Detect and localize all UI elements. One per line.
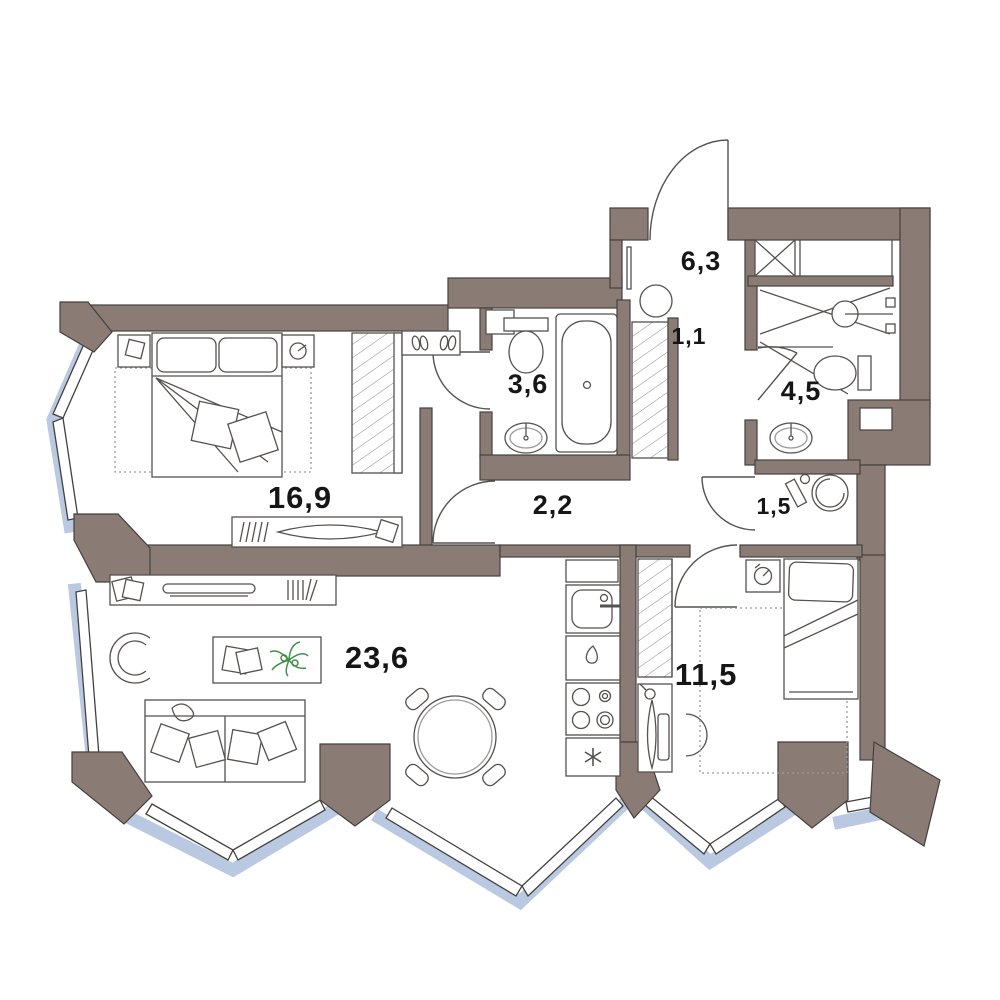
nightstand [282,335,314,367]
living-corridor-door [433,481,495,543]
wall [88,305,448,331]
wall [748,276,893,286]
window [644,796,710,854]
wall [900,208,930,408]
wardrobe [638,559,672,677]
wall [96,545,500,576]
wall [420,408,432,548]
coffee-table [213,637,321,683]
entry-door [650,140,728,240]
room-label-corridor: 2,2 [533,490,574,520]
nightstand [118,335,150,367]
wardrobe [632,322,668,458]
wall [745,420,757,465]
wall [610,240,622,288]
water-heater [640,285,672,317]
tv-console [110,575,336,605]
room-label-living: 23,6 [345,640,409,675]
stove [566,683,620,735]
wall [617,300,630,458]
toilet [814,356,871,390]
bench-shelf [232,517,402,547]
wall [480,412,492,458]
window [53,344,94,418]
kitchen-counter [566,636,620,680]
single-bed [784,559,858,699]
room-label-bedroom: 16,9 [268,480,332,515]
kitchen-sink [566,585,620,633]
kitchen-cabinet [566,560,618,582]
room-label-bedroom2: 11,5 [675,657,738,692]
bathroom-sink [505,423,547,453]
wall [860,555,885,760]
room-label-bathroom: 3,6 [508,369,549,399]
desk [638,684,672,772]
bathtub [556,314,617,452]
toilet [504,318,548,373]
wardrobe [352,333,402,473]
double-bed [152,333,282,477]
laundry-fixtures [785,475,848,512]
wall [480,455,630,480]
room-label-shower: 4,5 [781,376,822,406]
armchair [110,633,150,683]
wall-pier [870,742,940,846]
closet-shaft [755,240,795,276]
room-label-closet: 1,1 [672,323,707,349]
dining-table [403,686,507,788]
laundry-door [702,477,755,530]
wall [610,208,648,240]
shoe-shelf [402,331,460,355]
window [386,808,522,896]
sofa [145,700,305,782]
wall-pier [72,752,152,824]
wall-pier [74,514,150,582]
window [522,798,623,896]
wall [740,545,862,557]
wall [448,278,622,308]
bathroom-fixtures [486,310,617,453]
floor-plan: 6,3 1,1 4,5 3,6 2,2 1,5 16,9 23,6 11,5 [0,0,1000,1000]
desk-chair [686,714,707,756]
kitchen [566,560,620,776]
wall-niche [860,408,892,430]
wall [755,460,860,474]
floor-plan-svg: 6,3 1,1 4,5 3,6 2,2 1,5 16,9 23,6 11,5 [0,0,1000,1000]
nightstand [746,560,780,592]
washing-machine [812,475,848,511]
fridge [566,738,620,776]
wall [500,545,690,557]
room-label-laundry: 1,5 [757,493,792,519]
closet-niche [800,240,892,276]
mirror [627,247,631,289]
shower-room-sink [770,423,812,453]
room-label-hallway: 6,3 [681,246,722,276]
bathroom-door [433,352,490,409]
